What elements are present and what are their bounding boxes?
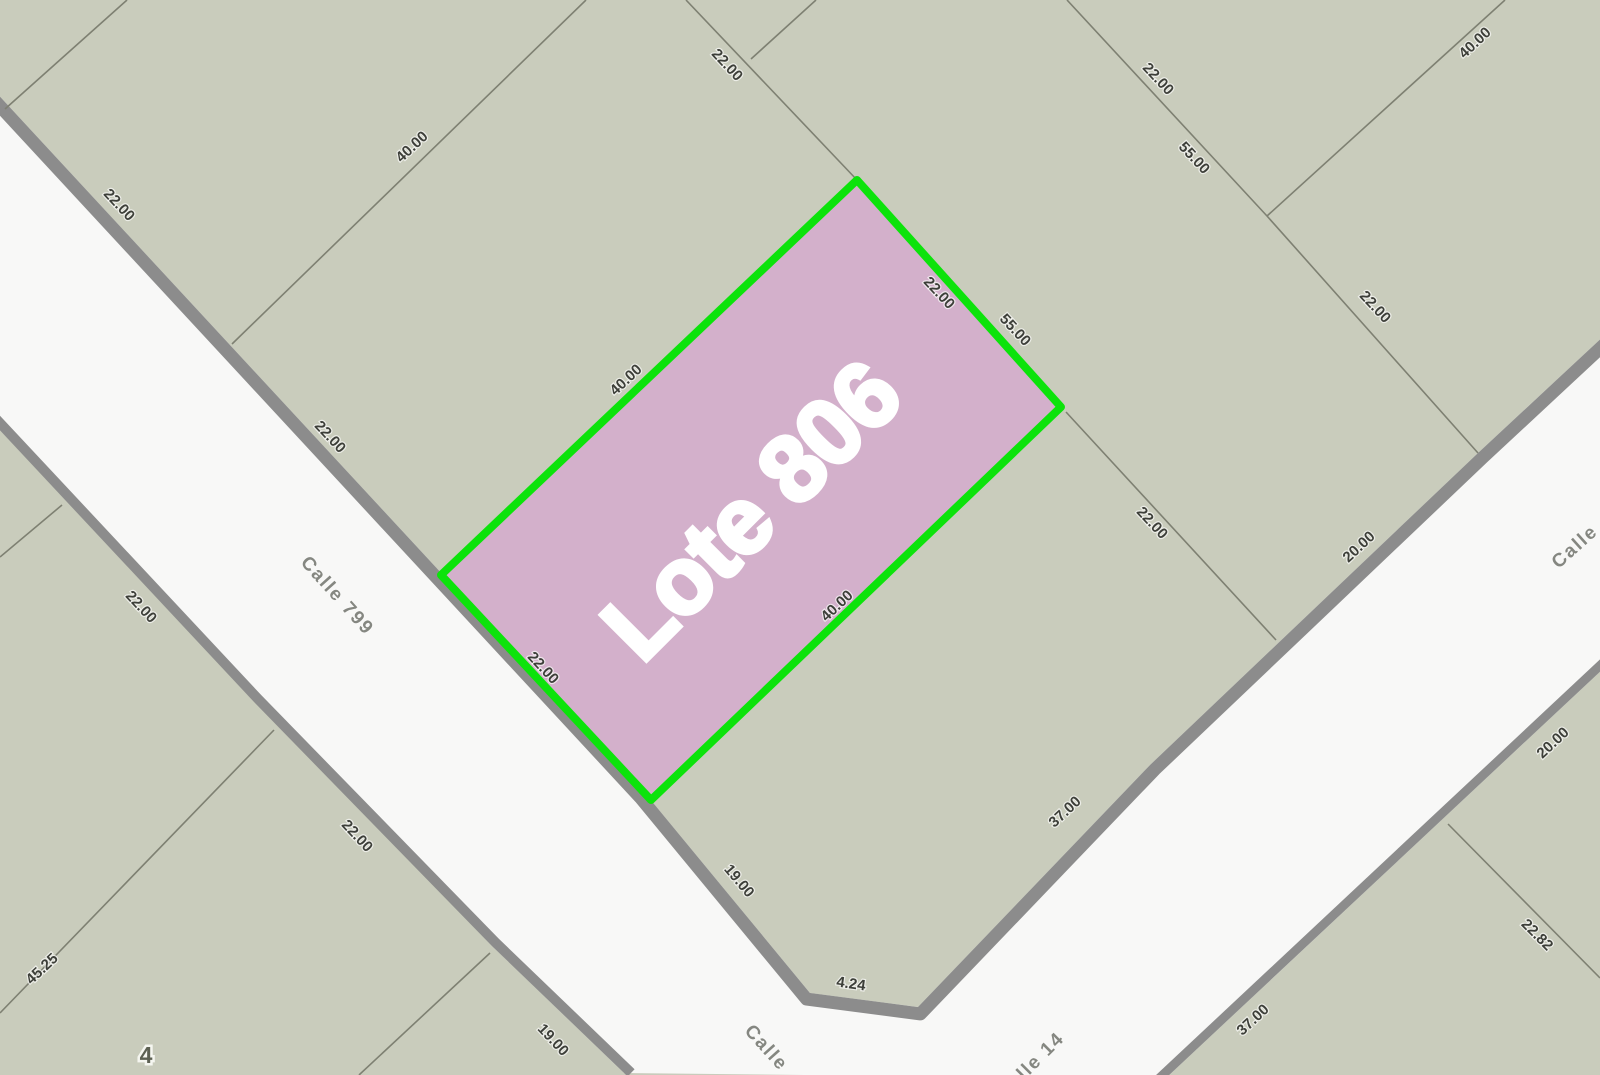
svg-text:4: 4 (140, 1042, 153, 1068)
